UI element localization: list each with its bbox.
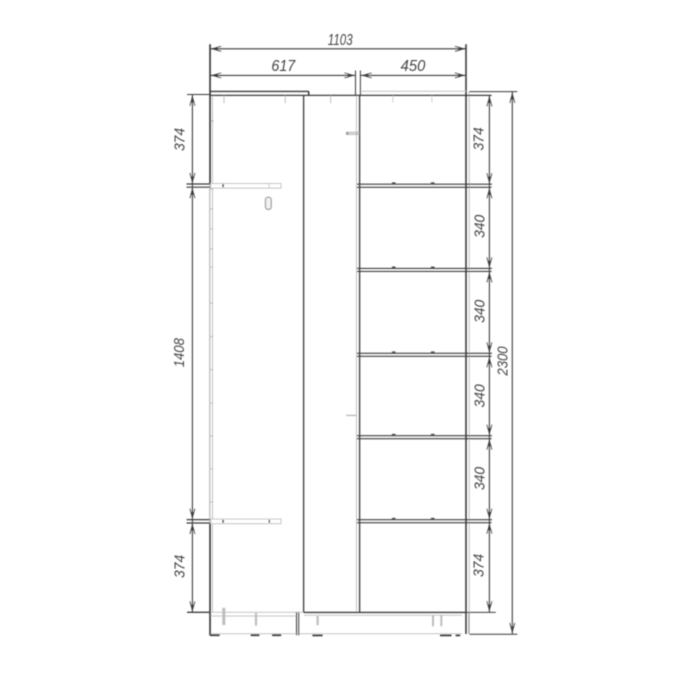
svg-text:340: 340 — [472, 384, 488, 407]
svg-text:340: 340 — [472, 215, 488, 238]
svg-text:374: 374 — [172, 128, 188, 151]
svg-text:617: 617 — [271, 59, 296, 76]
svg-text:374: 374 — [471, 554, 487, 577]
svg-text:1103: 1103 — [328, 31, 353, 48]
svg-text:2300: 2300 — [494, 346, 511, 376]
svg-text:1408: 1408 — [170, 338, 187, 367]
svg-text:340: 340 — [472, 467, 488, 490]
svg-text:450: 450 — [401, 58, 426, 75]
svg-text:374: 374 — [471, 127, 487, 150]
svg-text:374: 374 — [172, 555, 188, 578]
svg-text:340: 340 — [472, 300, 488, 323]
